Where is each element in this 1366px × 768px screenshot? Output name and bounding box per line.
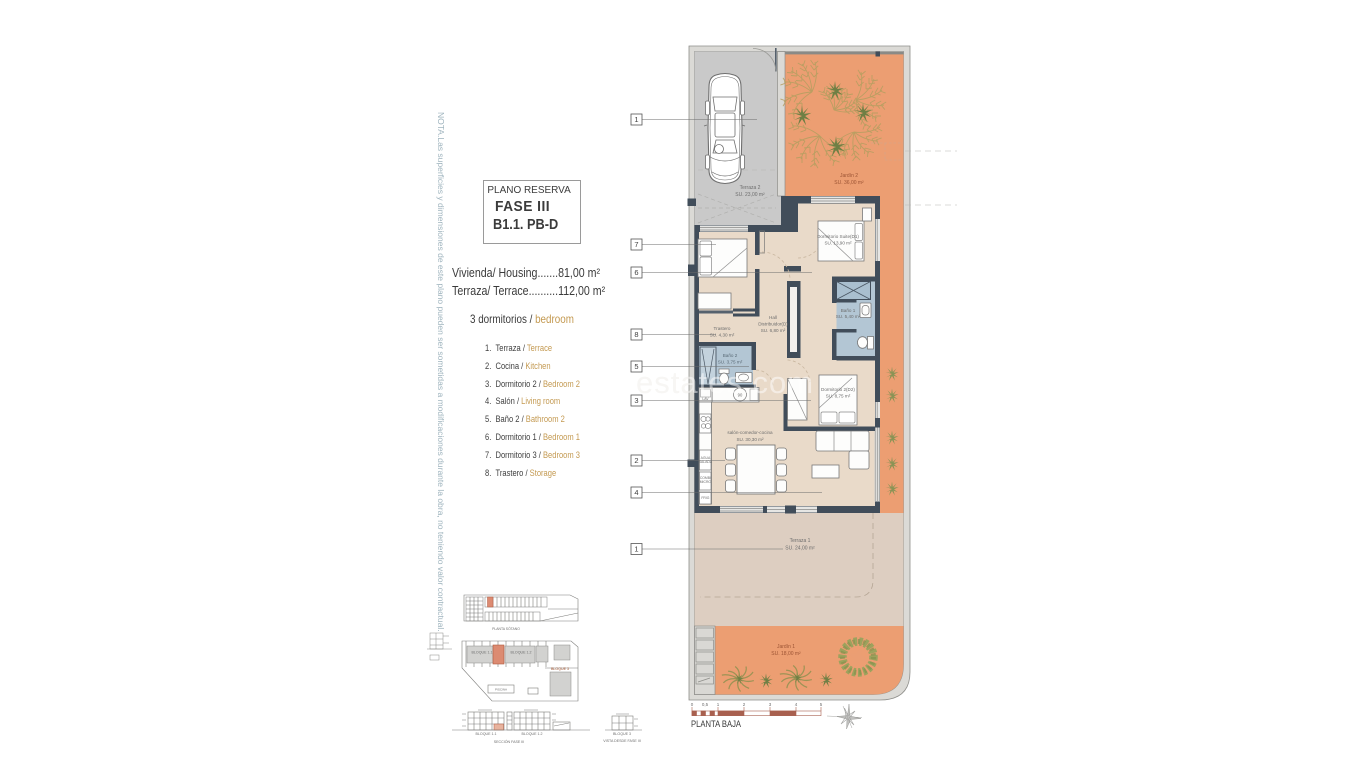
svg-text:SU. 24,00 m²: SU. 24,00 m²	[785, 546, 815, 552]
svg-text:1: 1	[634, 115, 638, 124]
svg-text:6: 6	[634, 268, 638, 277]
svg-text:BLOQUE 1.2: BLOQUE 1.2	[522, 732, 543, 736]
svg-text:MICRO: MICRO	[700, 480, 712, 484]
svg-text:PLANTA BAJA: PLANTA BAJA	[691, 719, 741, 729]
svg-text:4: 4	[634, 488, 638, 497]
svg-text:Terraza 2: Terraza 2	[740, 185, 761, 191]
svg-text:Dormitorio 2(D2): Dormitorio 2(D2)	[821, 387, 855, 392]
svg-text:VISTA DESDE FASE III: VISTA DESDE FASE III	[603, 739, 640, 743]
svg-text:BLOQUE 1.1: BLOQUE 1.1	[476, 732, 497, 736]
svg-text:1: 1	[717, 702, 720, 707]
svg-text:BLOQUE 3: BLOQUE 3	[613, 732, 631, 736]
svg-text:FRIG: FRIG	[701, 496, 709, 500]
svg-text:PISCINA: PISCINA	[495, 688, 507, 692]
svg-text:BLOQUE 3: BLOQUE 3	[551, 667, 569, 671]
svg-text:7: 7	[634, 240, 638, 249]
svg-text:Baño 1: Baño 1	[841, 308, 856, 313]
svg-text:4: 4	[795, 702, 798, 707]
svg-text:SU. 36,00 m²: SU. 36,00 m²	[834, 180, 864, 186]
svg-text:Dormitorio Suite(D1): Dormitorio Suite(D1)	[817, 234, 859, 239]
svg-text:BLOQUE 1.2: BLOQUE 1.2	[511, 651, 532, 655]
svg-text:2: 2	[634, 456, 638, 465]
svg-text:Baño 2: Baño 2	[723, 353, 738, 358]
svg-text:SU. 6,80 m²: SU. 6,80 m²	[761, 328, 786, 333]
svg-text:Jardín 2: Jardín 2	[840, 173, 858, 179]
svg-text:SU. 23,00 m²: SU. 23,00 m²	[735, 192, 765, 198]
svg-text:Trastero: Trastero	[714, 326, 731, 331]
svg-text:2: 2	[743, 702, 746, 707]
svg-text:PLANTA SÓTANO: PLANTA SÓTANO	[492, 626, 520, 631]
svg-text:Terraza 1: Terraza 1	[790, 538, 811, 544]
svg-text:Distribuidor(D): Distribuidor(D)	[758, 322, 788, 327]
svg-text:BLOQUE 1.1: BLOQUE 1.1	[472, 651, 493, 655]
svg-text:SU. 8,75 m²: SU. 8,75 m²	[826, 394, 851, 399]
svg-text:SU. 5,40 m²: SU. 5,40 m²	[836, 314, 861, 319]
svg-text:1: 1	[634, 545, 638, 554]
svg-text:Hall: Hall	[769, 315, 777, 320]
svg-text:5: 5	[820, 702, 823, 707]
svg-text:0,5: 0,5	[702, 702, 709, 707]
svg-text:salón-comedor-cocina: salón-comedor-cocina	[727, 430, 773, 435]
svg-text:3: 3	[769, 702, 772, 707]
svg-text:8: 8	[634, 330, 638, 339]
svg-text:SU. 30,30 m²: SU. 30,30 m²	[736, 437, 764, 442]
svg-text:SU. 3,75 m²: SU. 3,75 m²	[718, 360, 743, 365]
svg-text:estates.com: estates.com	[636, 365, 814, 400]
svg-text:SECCIÓN FASE III: SECCIÓN FASE III	[494, 739, 525, 744]
svg-text:SU. 4,30 m²: SU. 4,30 m²	[710, 333, 735, 338]
svg-text:Jardín 1: Jardín 1	[777, 644, 795, 650]
svg-text:0: 0	[691, 702, 694, 707]
svg-text:SU. 13,90 m²: SU. 13,90 m²	[824, 241, 852, 246]
svg-text:SU. 18,00 m²: SU. 18,00 m²	[771, 651, 801, 657]
